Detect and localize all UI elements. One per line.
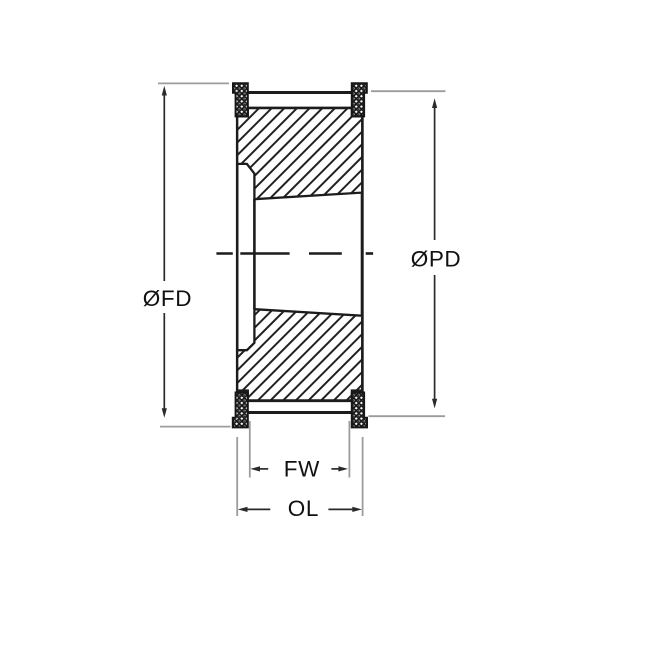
svg-text:ØPD: ØPD — [411, 247, 462, 272]
svg-text:FW: FW — [284, 456, 320, 481]
svg-text:ØFD: ØFD — [143, 286, 192, 311]
svg-text:OL: OL — [288, 496, 319, 521]
